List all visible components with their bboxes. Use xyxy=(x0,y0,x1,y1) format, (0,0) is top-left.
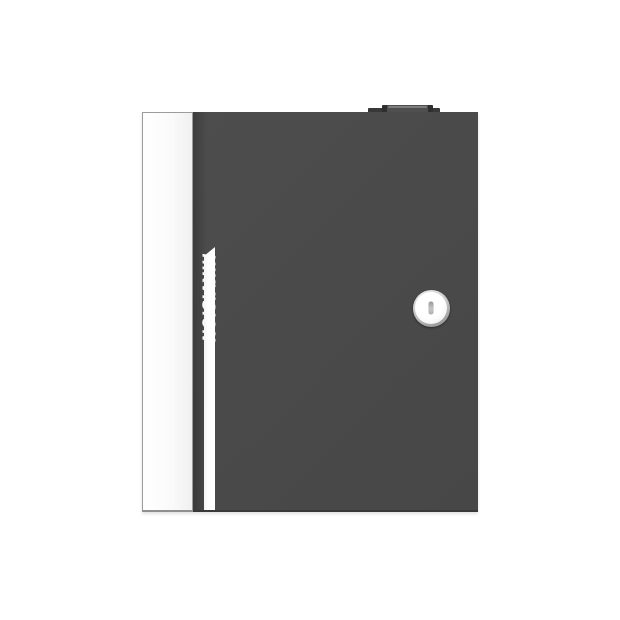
front-door: HIKVISION xyxy=(193,112,478,512)
enclosure: HIKVISION xyxy=(142,112,478,512)
keyhole-slot-icon xyxy=(429,302,434,315)
product-photo: HIKVISION xyxy=(0,0,620,620)
lock-face xyxy=(415,292,447,324)
accent-stripe xyxy=(204,247,215,510)
side-panel xyxy=(142,112,193,512)
top-tab-highlight xyxy=(388,106,427,108)
key-lock xyxy=(413,290,450,327)
